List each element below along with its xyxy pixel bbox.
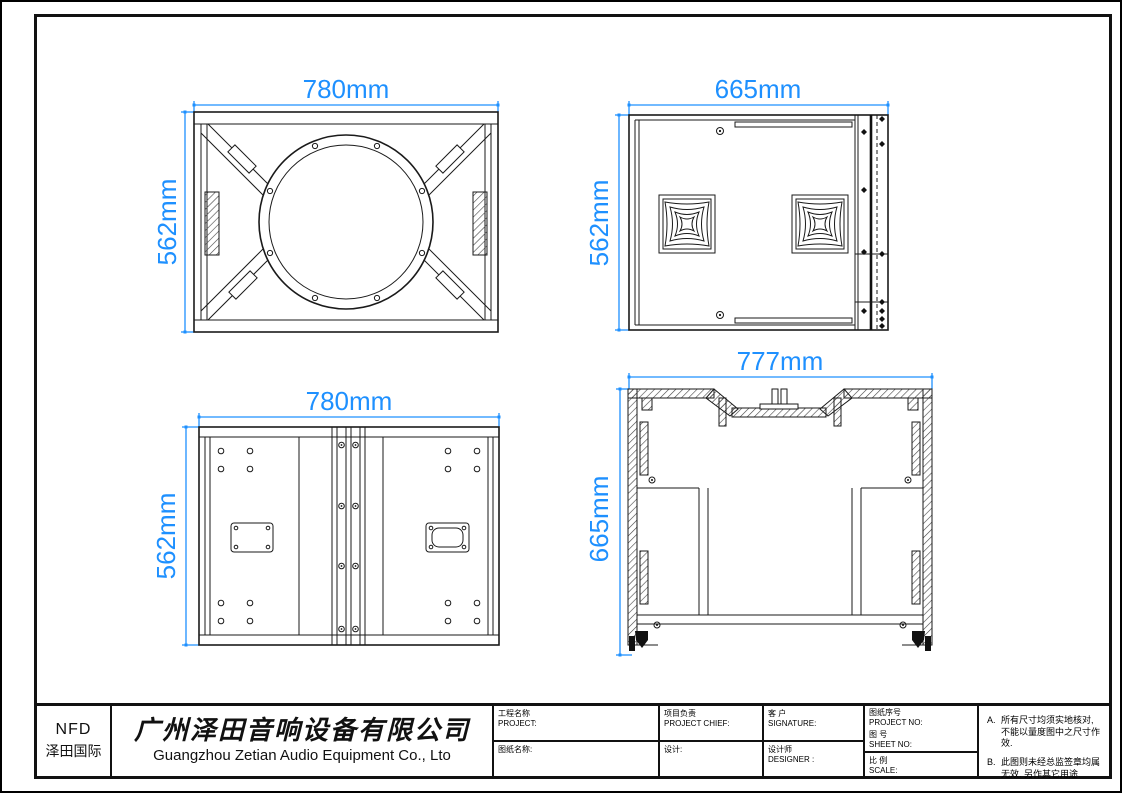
- title-block: NFD 泽田国际 广州泽田音响设备有限公司 Guangzhou Zetian A…: [34, 703, 1112, 779]
- handle-cup-section: [912, 422, 920, 475]
- note-a-text: 所有尺寸均须实地核对, 不能以量度图中之尺寸作效.: [1001, 715, 1103, 750]
- rear-view: 780mm 562mm: [151, 386, 501, 647]
- logo-cell: NFD 泽田国际: [37, 706, 112, 776]
- project-no-cell: 图纸序号 PROJECT NO: 图 号 SHEET NO:: [865, 706, 977, 753]
- side-handle-left: [659, 195, 715, 253]
- drawing-canvas: 780mm 562mm: [2, 2, 1122, 793]
- scale-cell: 比 例 SCALE:: [865, 753, 977, 778]
- chief-label-zh: 项目负责: [664, 709, 758, 719]
- section-width-dimension: 777mm: [628, 346, 934, 389]
- project-no-label-en: PROJECT NO:: [869, 718, 973, 728]
- client-label-zh: 客 户: [768, 709, 859, 719]
- section-height-label: 665mm: [584, 476, 614, 563]
- project-label-zh: 工程名称: [498, 709, 654, 719]
- side-height-dimension: 562mm: [584, 114, 629, 332]
- chief-label-en: PROJECT CHIEF:: [664, 719, 758, 729]
- front-height-dimension: 562mm: [152, 111, 194, 334]
- design-cell: 设计:: [660, 742, 762, 776]
- client-column: 客 户 SIGNATURE: 设计师 DESIGNER :: [764, 706, 865, 776]
- company-name-en: Guangzhou Zetian Audio Equipment Co., Lt…: [153, 747, 451, 764]
- left-wall-section: [628, 389, 637, 645]
- rear-rail: [855, 115, 888, 330]
- right-wall-section: [923, 389, 932, 645]
- side-width-label: 665mm: [715, 74, 802, 104]
- blank-plate: [231, 523, 273, 552]
- front-height-label: 562mm: [152, 179, 182, 266]
- company-name-zh: 广州泽田音响设备有限公司: [134, 718, 470, 745]
- left-handle-hatch: [205, 192, 219, 255]
- logo-text: NFD: [56, 721, 92, 739]
- sheet-no-label-en: SHEET NO:: [869, 740, 973, 750]
- side-width-dimension: 665mm: [628, 74, 890, 115]
- corner-brace: [228, 145, 256, 173]
- corner-brace: [229, 271, 257, 299]
- rigging-fitting: [760, 389, 798, 409]
- top-wall-left: [628, 389, 714, 398]
- side-view: 665mm 562mm: [584, 74, 890, 332]
- notes-cell: A. 所有尺寸均须实地核对, 不能以量度图中之尺寸作效. B. 此图则未经总监签…: [979, 706, 1109, 776]
- rear-height-label: 562mm: [151, 493, 181, 580]
- bottom-slot: [735, 318, 852, 323]
- drawing-name-cell: 图纸名称:: [494, 742, 658, 776]
- drawing-name-label: 图纸名称:: [498, 745, 654, 755]
- rear-width-dimension: 780mm: [198, 386, 501, 427]
- note-b-text: 此图则未经总监签章均属无效. 另作其它用途.: [1001, 757, 1103, 780]
- project-chief-cell: 项目负责 PROJECT CHIEF:: [660, 706, 762, 742]
- front-width-label: 780mm: [303, 74, 390, 104]
- client-cell: 客 户 SIGNATURE:: [764, 706, 863, 742]
- side-height-label: 562mm: [584, 180, 614, 267]
- section-height-dimension: 665mm: [584, 388, 632, 657]
- project-name-cell: 工程名称 PROJECT:: [494, 706, 658, 742]
- corner-brace: [436, 145, 464, 173]
- right-handle-hatch: [473, 192, 487, 255]
- design-label: 设计:: [664, 745, 758, 755]
- top-slot: [735, 122, 852, 127]
- sheet-no-label-zh: 图 号: [869, 730, 973, 740]
- side-handle-right: [792, 195, 848, 253]
- speaker-cutout: [259, 135, 433, 309]
- company-cell: 广州泽田音响设备有限公司 Guangzhou Zetian Audio Equi…: [112, 706, 494, 776]
- scale-label-zh: 比 例: [869, 756, 973, 766]
- handle-cup-section: [640, 422, 648, 475]
- front-width-dimension: 780mm: [193, 74, 500, 112]
- project-column: 工程名称 PROJECT: 图纸名称:: [494, 706, 660, 776]
- note-a: A. 所有尺寸均须实地核对, 不能以量度图中之尺寸作效.: [987, 715, 1103, 750]
- rear-height-dimension: 562mm: [151, 426, 199, 647]
- corner-brace: [436, 271, 464, 299]
- designer-cell: 设计师 DESIGNER :: [764, 742, 863, 776]
- note-a-id: A.: [987, 715, 1001, 750]
- note-b-id: B.: [987, 757, 1001, 780]
- section-view: 777mm 665mm: [584, 346, 934, 657]
- designer-label-en: DESIGNER :: [768, 755, 859, 765]
- handle-cup-section: [912, 551, 920, 604]
- connector-plate: [426, 523, 469, 552]
- project-label-en: PROJECT:: [498, 719, 654, 729]
- chief-column: 项目负责 PROJECT CHIEF: 设计:: [660, 706, 764, 776]
- section-width-label: 777mm: [737, 346, 824, 376]
- center-mullion: [332, 427, 365, 645]
- logo-subtext: 泽田国际: [46, 741, 102, 761]
- top-wall-right: [844, 389, 932, 398]
- project-no-label-zh: 图纸序号: [869, 708, 973, 718]
- handle-cup-section: [640, 551, 648, 604]
- note-b: B. 此图则未经总监签章均属无效. 另作其它用途.: [987, 757, 1103, 780]
- client-label-en: SIGNATURE:: [768, 719, 859, 729]
- scale-label-en: SCALE:: [869, 766, 973, 776]
- numbers-column: 图纸序号 PROJECT NO: 图 号 SHEET NO: 比 例 SCALE…: [865, 706, 979, 776]
- rear-width-label: 780mm: [306, 386, 393, 416]
- designer-label-zh: 设计师: [768, 745, 859, 755]
- corner-screws: [218, 448, 480, 624]
- drawing-sheet: 780mm 562mm: [0, 0, 1122, 793]
- front-view: 780mm 562mm: [152, 74, 500, 334]
